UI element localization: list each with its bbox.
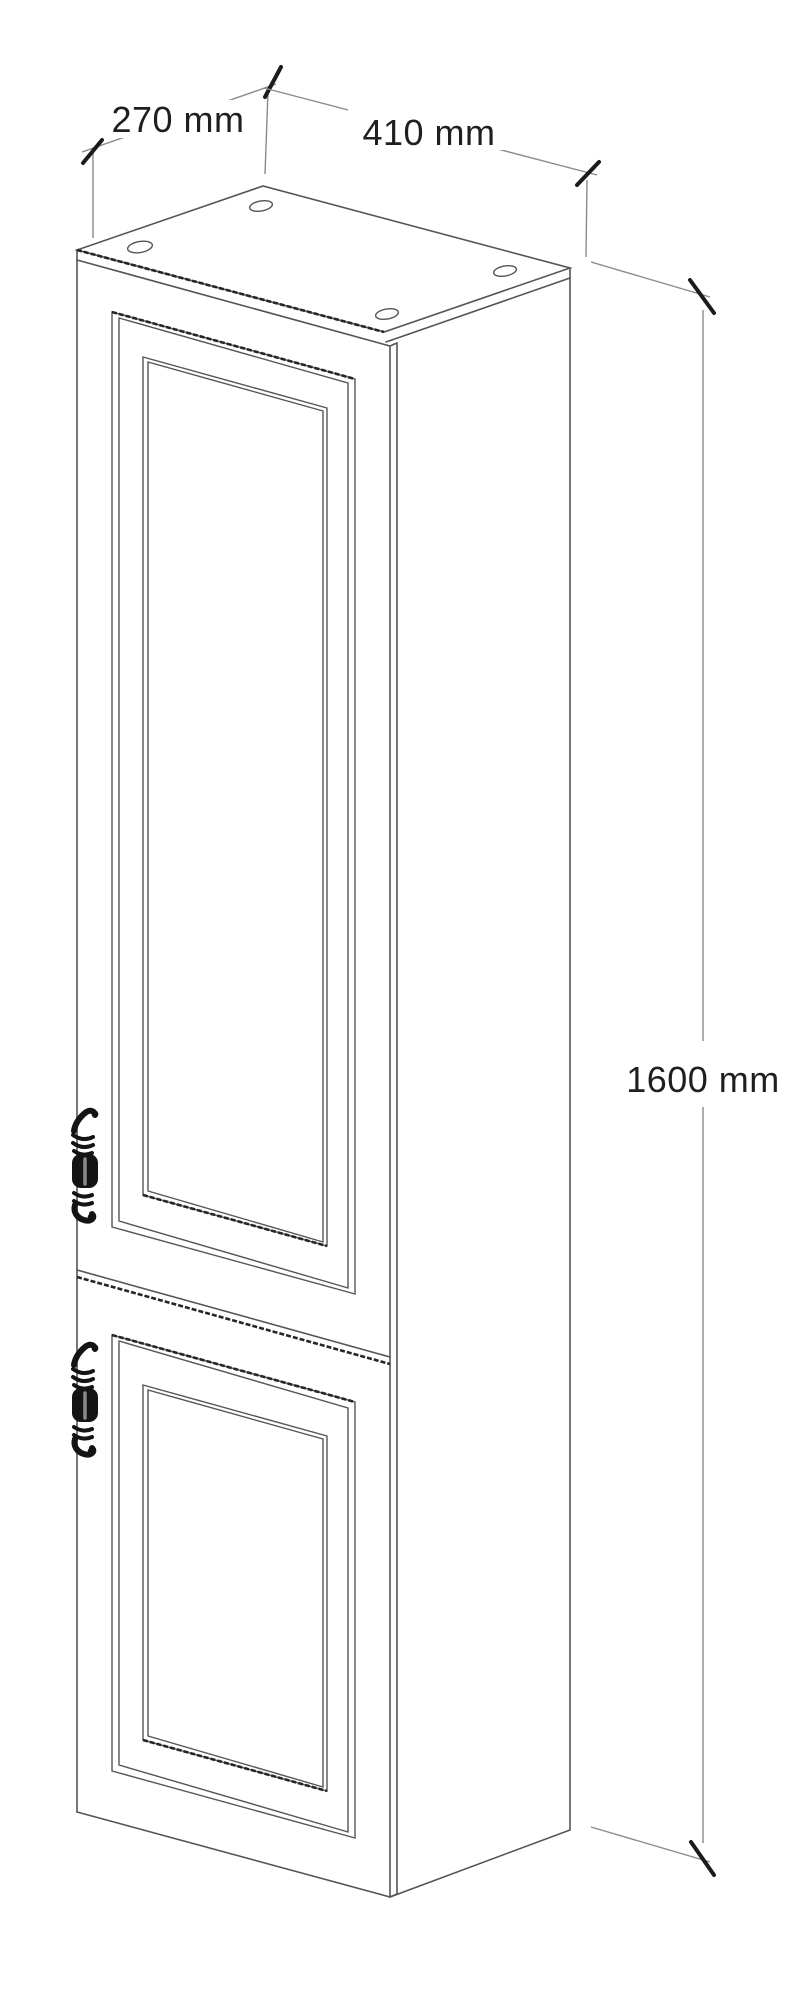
cabinet-top-face	[77, 186, 570, 332]
tick-mark	[690, 280, 714, 313]
lower-door-handle	[72, 1345, 98, 1455]
dimension-height: 1600 mm	[591, 262, 789, 1875]
tick-mark	[691, 1842, 714, 1875]
width-dimension-label: 410 mm	[362, 112, 495, 153]
depth-dimension-label: 270 mm	[111, 99, 244, 140]
mounting-hole	[375, 307, 399, 321]
tick-mark	[577, 162, 599, 185]
lower-panel-bottom-shadow	[143, 1740, 327, 1791]
dimension-depth: 270 mm	[82, 67, 281, 238]
mounting-hole	[249, 199, 273, 213]
upper-panel-bottom-shadow	[143, 1195, 327, 1246]
height-extension-line-top	[591, 262, 710, 297]
door-right-edge-outer	[390, 343, 397, 1897]
mounting-hole	[493, 264, 517, 278]
mounting-hole	[127, 239, 154, 254]
door-gap-upper-line	[77, 1270, 390, 1357]
upper-door-handle	[72, 1111, 98, 1221]
depth-extension-line-right	[265, 92, 268, 174]
upper-door	[77, 260, 397, 1897]
width-extension-line-right	[586, 180, 587, 257]
side-panel-top-edge	[386, 278, 570, 342]
height-dimension-label: 1600 mm	[626, 1059, 780, 1100]
lower-door	[112, 1335, 355, 1838]
shadow-edges	[77, 250, 390, 1791]
upper-door-panel	[143, 357, 327, 1246]
cabinet-isometric-drawing: 270 mm 410 mm 1600 mm	[0, 0, 807, 2000]
upper-door-top-edge	[77, 260, 397, 346]
lower-door-panel	[143, 1385, 327, 1791]
technical-drawing-page: 270 mm 410 mm 1600 mm	[0, 0, 807, 2000]
